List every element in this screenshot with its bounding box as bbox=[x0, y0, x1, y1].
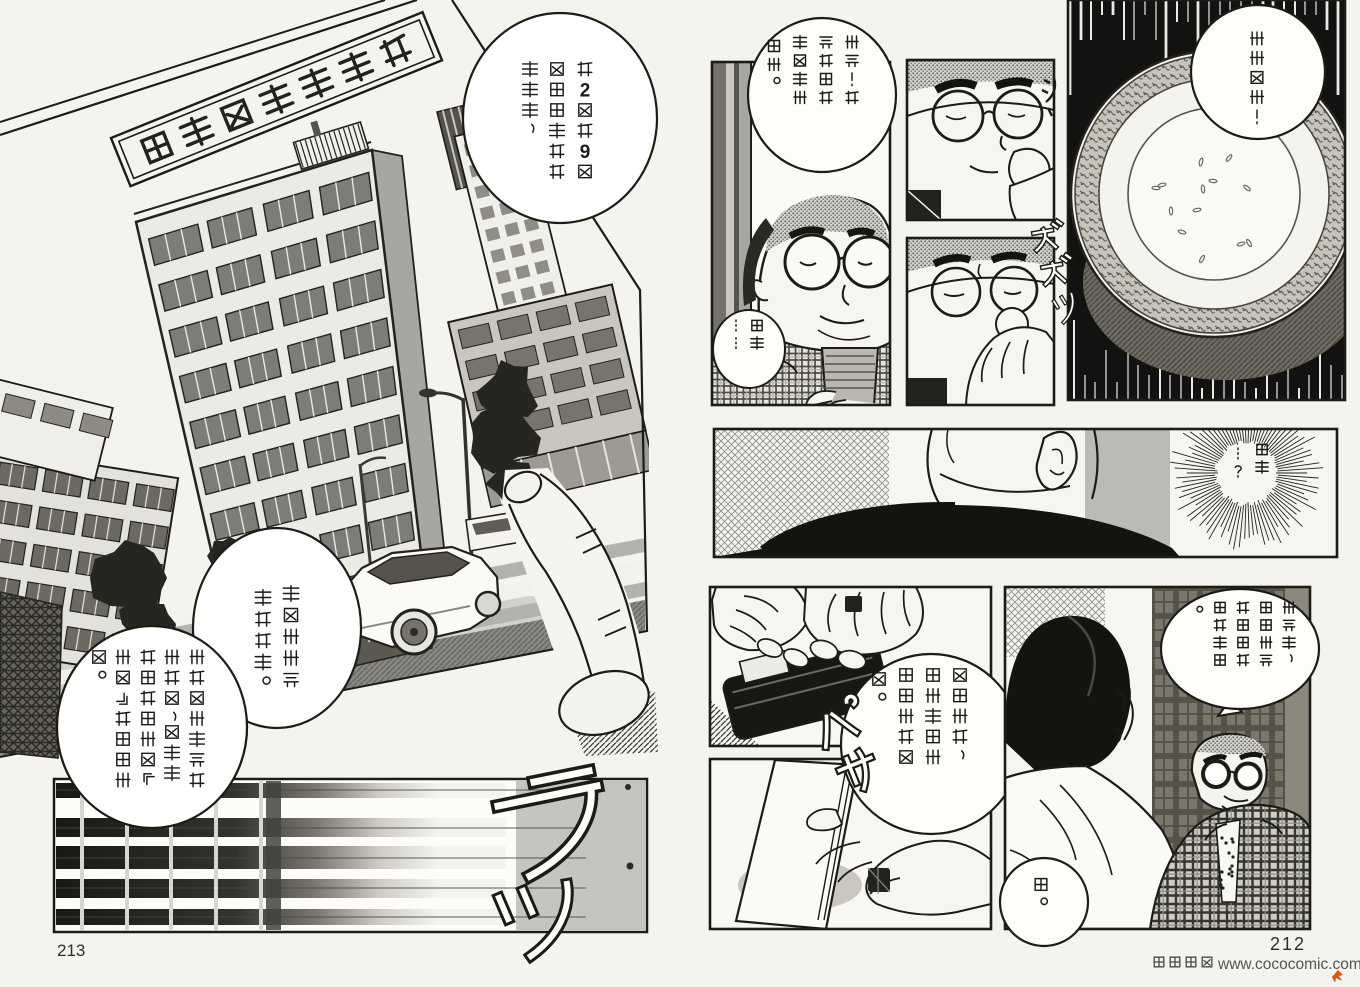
svg-text:2: 2 bbox=[580, 80, 591, 101]
svg-text:212: 212 bbox=[1270, 934, 1306, 954]
svg-text:213: 213 bbox=[57, 941, 85, 960]
svg-text:9: 9 bbox=[580, 142, 591, 163]
svg-text:www.cococomic.com: www.cococomic.com bbox=[1217, 956, 1360, 973]
